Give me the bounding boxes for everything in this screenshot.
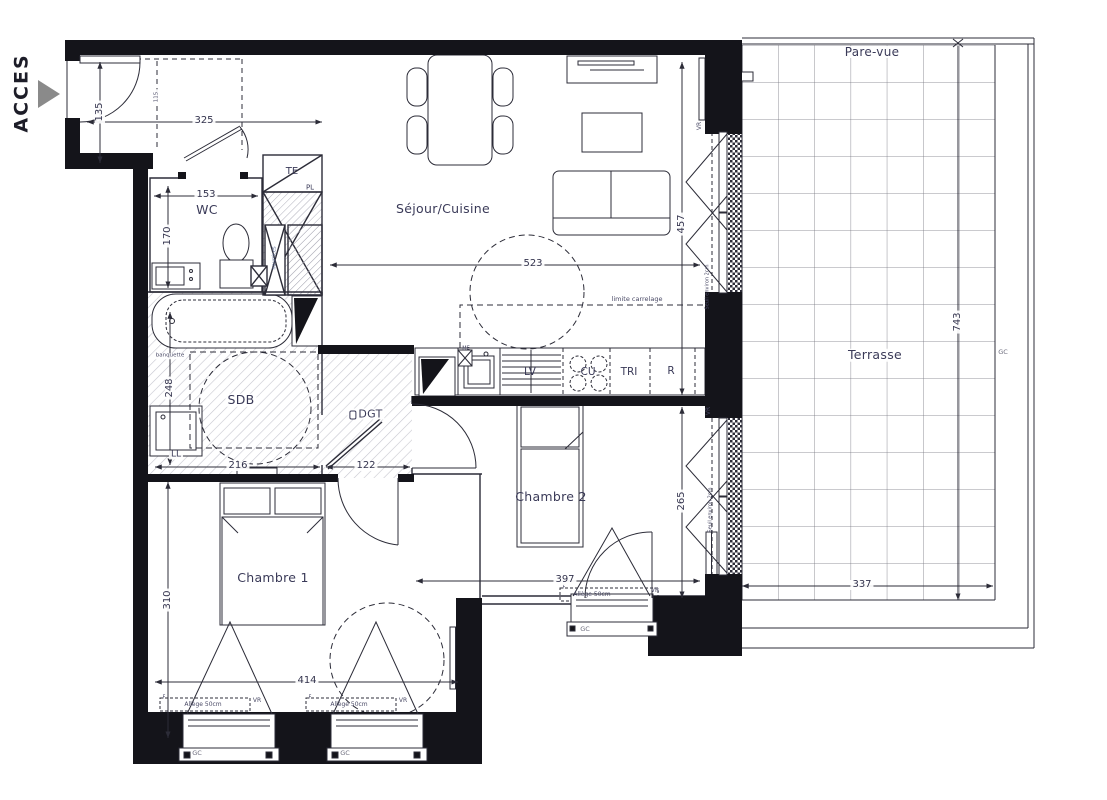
dim-ch1-depth: 310	[163, 588, 173, 611]
dim-entry-width: 325	[192, 116, 215, 126]
dim-terrasse-width: 337	[850, 580, 873, 590]
sofa	[553, 171, 670, 235]
seuil-label: Seuil environ 2cm	[709, 488, 714, 533]
allege-label: Allège 50cm	[330, 702, 367, 708]
entry-zone-outline	[82, 59, 242, 150]
washing-machine	[150, 406, 202, 456]
dim-ch2-depth: 265	[677, 489, 687, 512]
shutter-track	[728, 418, 742, 575]
allege-label: Allège 50cm	[184, 702, 221, 708]
room-label-chambre1: Chambre 1	[237, 572, 309, 585]
tile-limit-line	[460, 305, 740, 348]
appliance-label-r: R	[667, 366, 674, 377]
banquette-label: banquette	[154, 353, 186, 359]
seuil-label: Seuil environ 2cm	[706, 265, 711, 310]
duct-unit	[292, 296, 322, 346]
closet-label-te: TE	[286, 167, 298, 177]
dim-wc-width: 153	[194, 190, 217, 200]
f-label: F	[563, 586, 566, 591]
bed-double	[220, 483, 325, 625]
tile-limit-label: limite carrelage	[612, 296, 663, 303]
ch2-door	[412, 404, 476, 468]
appliance-label-cu: CU	[580, 367, 595, 378]
dim-terrasse-depth: 743	[953, 310, 963, 333]
dim-sejour-depth: 457	[677, 212, 687, 235]
toilet	[220, 224, 253, 288]
kitchen-counter	[415, 348, 705, 396]
dim-ch1-width: 414	[295, 676, 318, 686]
turning-circle	[330, 603, 444, 717]
room-label-sejour: Séjour/Cuisine	[396, 203, 490, 216]
tv-console	[567, 56, 657, 83]
chair	[493, 68, 513, 106]
nourrices-label: nourrices	[273, 246, 278, 269]
dining-table	[407, 55, 513, 165]
gc-label: GC	[998, 349, 1008, 356]
appliance-label-tri: TRI	[621, 367, 638, 378]
closet-label-pl: PL	[306, 185, 314, 192]
dim-dgt-width: 122	[354, 461, 377, 471]
appliance-label-me: ME	[462, 347, 469, 352]
gc-label: GC	[580, 626, 590, 633]
vr-label: VR	[253, 698, 261, 704]
gc-label: GC	[192, 750, 202, 757]
pare-vue-label: Pare-vue	[843, 46, 902, 58]
f-label: F	[309, 696, 312, 701]
door-icon	[349, 410, 356, 419]
bathtub	[152, 294, 292, 348]
shutter-track	[728, 134, 742, 293]
access-label: ACCES	[13, 53, 32, 132]
room-label-chambre2: Chambre 2	[515, 491, 587, 504]
f-label: F	[163, 696, 166, 701]
floor-plan: ACCES Pare-vue Séjour/Cuisine WC SDB DGT…	[0, 0, 1107, 800]
vr-label: VR	[399, 698, 407, 704]
appliance-label-ll: LL	[169, 451, 183, 460]
vr-label: VR	[697, 122, 703, 130]
room-label-wc: WC	[196, 204, 218, 217]
wc-door	[184, 126, 248, 161]
room-label-dgt: DGT	[347, 409, 384, 420]
chair	[407, 68, 427, 106]
allege-label: Allège 50cm	[573, 592, 610, 598]
dim-wc-depth: 170	[163, 224, 173, 247]
dim-entry-inner: 115	[154, 90, 160, 105]
vr-label: VR	[706, 407, 712, 415]
plan-linework	[0, 0, 1107, 800]
turning-circle	[470, 235, 584, 349]
bed-single	[517, 403, 583, 547]
ch1-door	[338, 478, 398, 545]
counter-end-unit	[419, 357, 455, 396]
wc-vanity	[152, 263, 200, 289]
room-label-sdb: SDB	[225, 394, 256, 407]
room-label-terrasse: Terrasse	[846, 349, 904, 362]
access-arrow-icon	[38, 80, 60, 108]
dim-sdb-depth: 248	[165, 376, 175, 399]
gc-label: GC	[340, 750, 350, 757]
dim-ch2-width: 397	[553, 575, 576, 585]
chair	[493, 116, 513, 154]
vr-label: VR	[651, 588, 659, 594]
appliance-label-lv: LV	[524, 367, 536, 378]
dim-sejour-width: 523	[521, 259, 544, 269]
dim-sdb-width: 216	[226, 461, 249, 471]
chair	[407, 116, 427, 154]
coffee-table	[582, 113, 642, 152]
dim-entry-depth: 135	[95, 100, 105, 123]
